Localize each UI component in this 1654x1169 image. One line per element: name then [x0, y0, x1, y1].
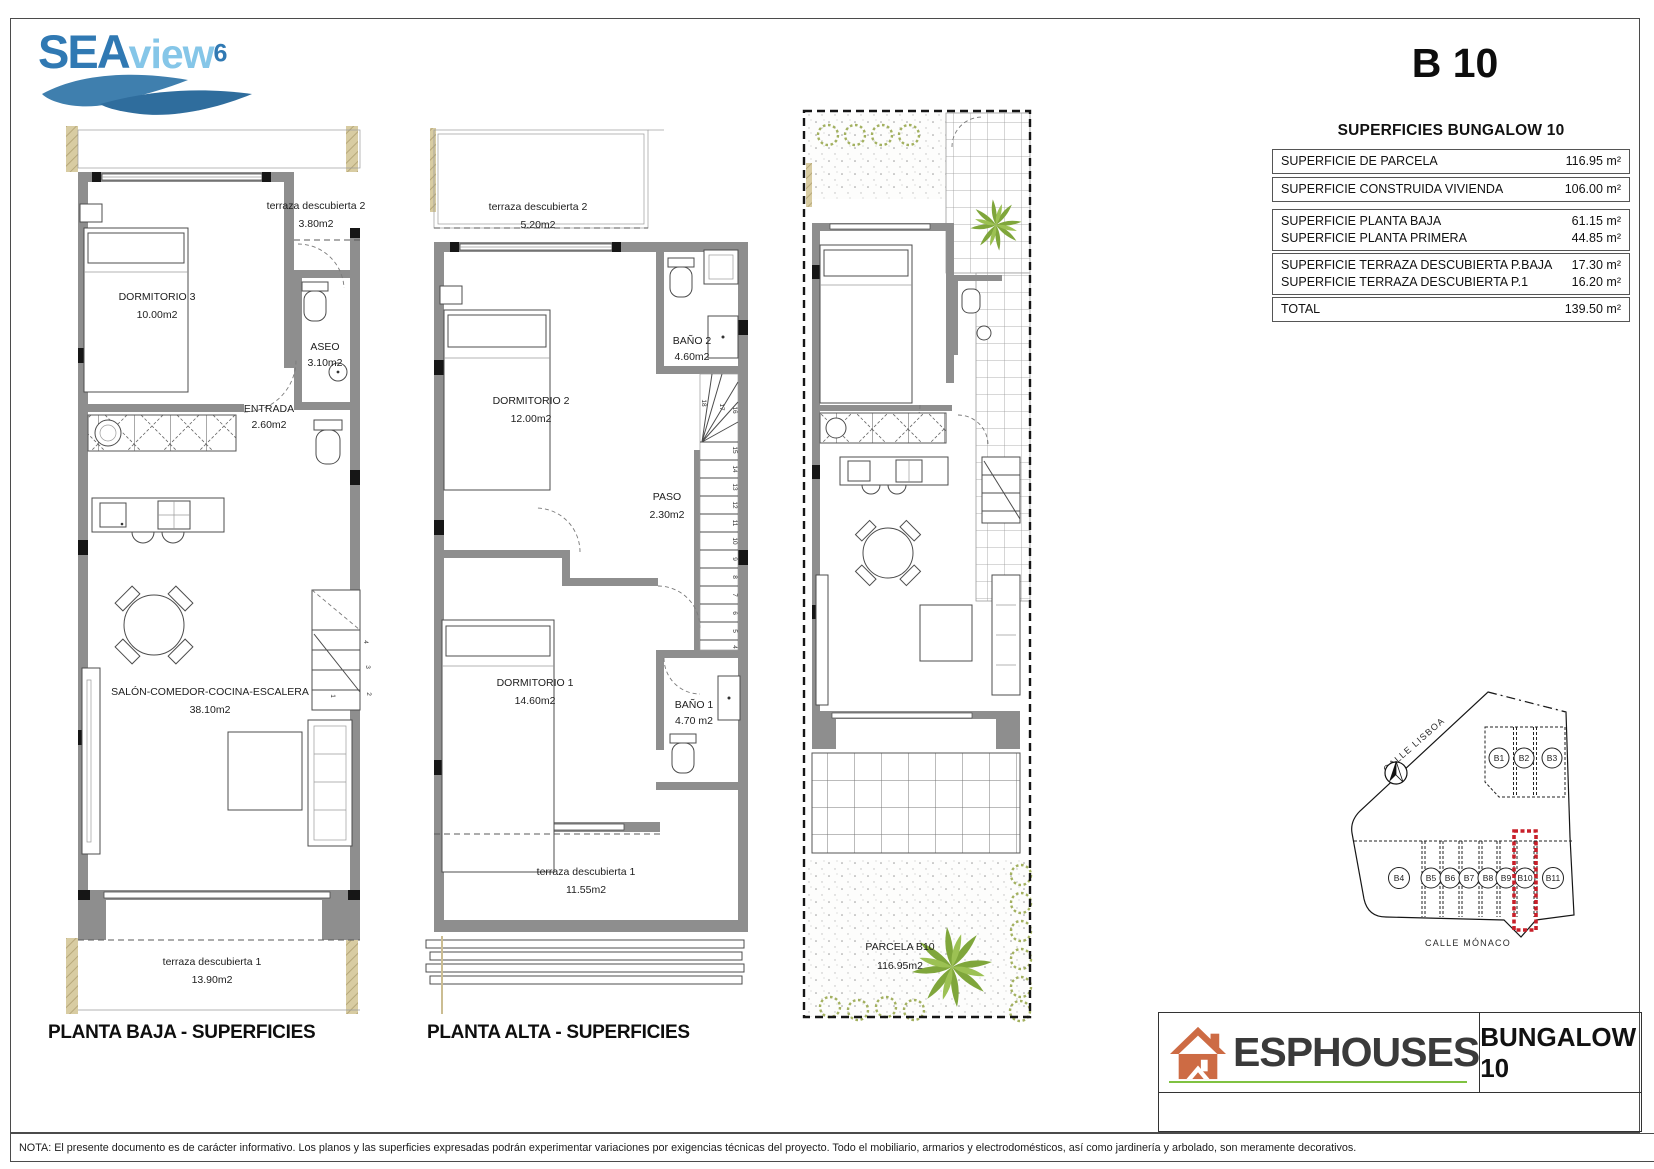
room-area-bano2: 4.60m2 [674, 351, 709, 363]
unit-label-cell: BUNGALOW 10 [1480, 1013, 1641, 1092]
room-label-dormitorio3: DORMITORIO 3 [119, 291, 196, 303]
bed-furniture [440, 286, 550, 490]
plot-label-b10: B10 [1517, 873, 1532, 883]
plot-label-b2: B2 [1519, 753, 1530, 763]
svg-text:5: 5 [731, 629, 738, 633]
row-value: 16.20 m² [1572, 274, 1621, 291]
garden-ground [806, 860, 1028, 1017]
caption-planta-alta: PLANTA ALTA - SUPERFICIES [427, 1022, 690, 1044]
plot-label-b9: B9 [1501, 873, 1512, 883]
dining-table [855, 520, 920, 585]
surfaces-table-title: SUPERFICIES BUNGALOW 10 [1272, 122, 1630, 140]
svg-text:12: 12 [731, 501, 738, 509]
roof-terrace-outline [434, 130, 664, 228]
room-area-bano1: 4.70 m2 [675, 715, 713, 727]
stair-number: 3 [364, 665, 371, 669]
room-label-terraza2: terraza descubierta 2 [489, 201, 588, 213]
staircase [982, 457, 1020, 523]
svg-text:6: 6 [731, 611, 738, 615]
neighbor-wall-hatching [806, 163, 812, 207]
pergola-slats [426, 936, 744, 1014]
kitchen-island [92, 498, 224, 543]
room-label-entrada: ENTRADA [244, 403, 294, 415]
table-row: SUPERFICIE CONSTRUIDA VIVIENDA106.00 m² [1272, 177, 1630, 202]
door-arc [658, 586, 700, 628]
plot-label-b5: B5 [1426, 873, 1437, 883]
door-arc [298, 244, 344, 288]
room-area-dormitorio3: 10.00m2 [137, 309, 178, 321]
plot-label-b11: B11 [1546, 873, 1561, 883]
kitchen-island [840, 457, 948, 494]
staircase [700, 374, 738, 650]
room-label-terraza1: terraza descubierta 1 [163, 956, 262, 968]
brand-underline [1169, 1081, 1467, 1083]
room-label-terraza1: terraza descubierta 1 [537, 866, 636, 878]
table-row-group: SUPERFICIE PLANTA BAJA61.15 m² SUPERFICI… [1272, 209, 1630, 251]
room-area-terraza1: 13.90m2 [192, 974, 233, 986]
row-label: SUPERFICIE DE PARCELA [1281, 153, 1566, 170]
svg-text:18: 18 [700, 399, 707, 407]
row-value: 17.30 m² [1572, 257, 1621, 274]
row-label: SUPERFICIE CONSTRUIDA VIVIENDA [1281, 181, 1565, 198]
logo-text-view: view [129, 31, 214, 77]
pergola-trellis [812, 753, 1020, 853]
room-label-dormitorio1: DORMITORIO 1 [497, 677, 574, 689]
row-label: SUPERFICIE TERRAZA DESCUBIERTA P.BAJA [1281, 257, 1572, 274]
walkway-tiles [946, 113, 1030, 273]
room-label-dormitorio2: DORMITORIO 2 [493, 395, 570, 407]
kitchen-sink [826, 418, 846, 438]
svg-text:8: 8 [731, 575, 738, 579]
row-label: SUPERFICIE PLANTA PRIMERA [1281, 230, 1572, 247]
bed-furniture [820, 245, 912, 403]
room-area-dormitorio1: 14.60m2 [515, 695, 556, 707]
plot-label-b7: B7 [1464, 873, 1475, 883]
title-block-empty-row [1158, 1091, 1642, 1132]
surfaces-table: SUPERFICIES BUNGALOW 10 SUPERFICIE DE PA… [1272, 122, 1630, 322]
room-area-salon: 38.10m2 [190, 704, 231, 716]
row-label: SUPERFICIE PLANTA BAJA [1281, 213, 1572, 230]
floorplan-planta-baja: terraza descubierta 2 3.80m2 DORMITORIO … [62, 120, 392, 1018]
garden-ground [806, 113, 946, 199]
wc-fixture [314, 420, 342, 464]
room-area-terraza1: 11.55m2 [566, 884, 606, 896]
stair-number: 2 [365, 692, 372, 696]
row-label: TOTAL [1281, 301, 1565, 318]
plan-sheet: SEAview6 B 10 SUPERFICIES BUNGALOW 10 SU… [0, 0, 1654, 1169]
row-value: 61.15 m² [1572, 213, 1621, 230]
svg-text:7: 7 [731, 593, 738, 597]
room-label-aseo: ASEO [310, 341, 339, 353]
plot-plan-parcela: PARCELA B10 116.95m2 [800, 105, 1035, 1025]
room-label-paso: PASO [653, 491, 681, 503]
plot-label: PARCELA B10 [865, 941, 934, 953]
caption-planta-baja: PLANTA BAJA - SUPERFICIES [48, 1022, 315, 1044]
room-area-terraza2: 5.20m2 [520, 219, 555, 231]
plots-block-top: B1 B2 B3 [1485, 727, 1565, 797]
esphouses-house-icon [1169, 1025, 1227, 1081]
row-value: 139.50 m² [1565, 301, 1621, 318]
room-label-bano1: BAÑO 1 [675, 698, 714, 711]
row-value: 106.00 m² [1565, 181, 1621, 198]
table-row-total: TOTAL139.50 m² [1272, 297, 1630, 322]
svg-text:13: 13 [731, 483, 738, 491]
svg-text:14: 14 [731, 465, 738, 473]
table-row: SUPERFICIE DE PARCELA116.95 m² [1272, 149, 1630, 174]
street-label-bottom: CALLE MÓNACO [1425, 938, 1511, 948]
logo-superscript-6: 6 [214, 40, 228, 68]
north-arrow-icon [1385, 761, 1407, 784]
room-label-bano2: BAÑO 2 [673, 334, 712, 347]
room-label-salon: SALÓN-COMEDOR-COCINA-ESCALERA [111, 685, 309, 698]
room-area-dormitorio2: 12.00m2 [511, 413, 552, 425]
floorplan-planta-alta: terraza descubierta 2 5.20m2 DORMITORIO … [420, 120, 750, 1018]
roof-edge-line [78, 130, 360, 168]
stair-numbers: 18 17 16 15 14 13 12 11 10 9 8 7 6 5 4 [700, 399, 738, 649]
stair-number: 1 [329, 694, 336, 698]
stair-number: 4 [362, 640, 369, 644]
staircase [312, 590, 360, 710]
walkway-tiles [976, 273, 1030, 601]
room-area-aseo: 3.10m2 [307, 357, 342, 369]
door-arc [536, 508, 580, 552]
svg-text:17: 17 [718, 403, 725, 411]
table-row-group: SUPERFICIE TERRAZA DESCUBIERTA P.BAJA17.… [1272, 253, 1630, 295]
plot-label-b1: B1 [1494, 753, 1505, 763]
svg-text:9: 9 [731, 557, 738, 561]
svg-text:4: 4 [731, 645, 738, 649]
neighbor-wall-hatching [430, 128, 436, 212]
plot-label-b4: B4 [1394, 873, 1405, 883]
row-label: SUPERFICIE TERRAZA DESCUBIERTA P.1 [1281, 274, 1572, 291]
seaview-logo: SEAview6 [38, 24, 278, 124]
brand-name: ESPHOUSES [1233, 1029, 1479, 1076]
plot-label-b3: B3 [1547, 753, 1558, 763]
plot-label-b8: B8 [1483, 873, 1494, 883]
room-area-terraza2: 3.80m2 [298, 218, 333, 230]
room-area-entrada: 2.60m2 [251, 419, 286, 431]
unit-code-title: B 10 [1380, 40, 1530, 87]
row-value: 116.95 m² [1566, 153, 1621, 170]
title-block: ESPHOUSES BUNGALOW 10 [1158, 1012, 1642, 1093]
svg-text:16: 16 [731, 406, 738, 414]
row-value: 44.85 m² [1572, 230, 1621, 247]
door-arc [664, 658, 700, 694]
kitchen-sink [95, 420, 121, 446]
svg-text:15: 15 [731, 446, 738, 454]
svg-text:11: 11 [731, 520, 738, 527]
plot-label-b6: B6 [1445, 873, 1456, 883]
logo-text-sea: SEA [38, 25, 129, 78]
room-label-terraza2: terraza descubierta 2 [267, 200, 366, 212]
brand-cell: ESPHOUSES [1159, 1013, 1480, 1092]
svg-text:10: 10 [731, 537, 738, 545]
room-area-paso: 2.30m2 [649, 509, 684, 521]
site-map: CALLE LISBOA B1 B2 B3 [1268, 615, 1652, 960]
plot-area: 116.95m2 [877, 960, 923, 972]
footer-note: NOTA: El presente documento es de caráct… [10, 1133, 1654, 1162]
dining-table [115, 586, 193, 664]
plots-block-bottom: B4 B5 B6 B7 B8 B9 B10 B11 [1354, 841, 1574, 917]
